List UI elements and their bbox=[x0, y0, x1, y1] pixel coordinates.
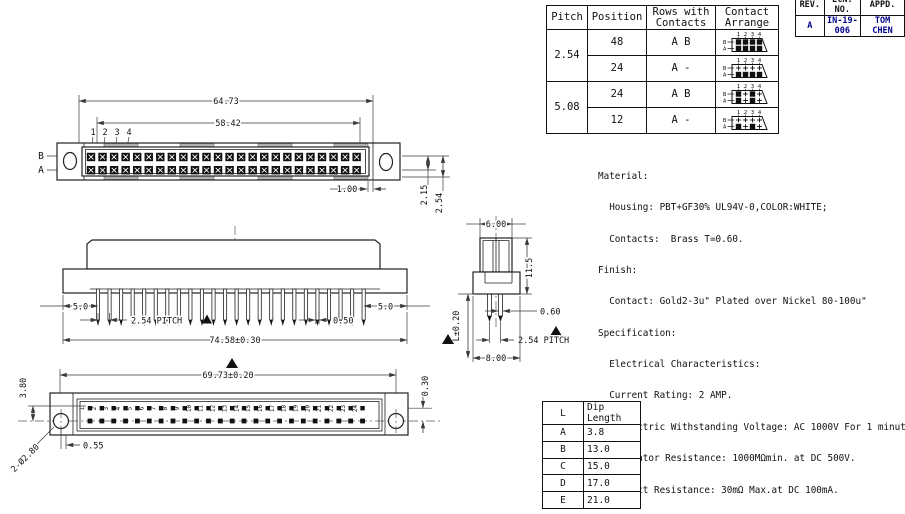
dim-row-offset: 3.80 bbox=[19, 378, 29, 398]
svg-text:4: 4 bbox=[758, 32, 762, 38]
svg-text:10: 10 bbox=[186, 405, 193, 413]
position-cell: 12 bbox=[588, 108, 647, 134]
table-row: C15.0 bbox=[543, 458, 641, 475]
dim-overall: 64.73 bbox=[213, 97, 239, 107]
dim-overall-footprint: 69.73±0.20 bbox=[202, 371, 253, 381]
svg-text:4: 4 bbox=[758, 58, 762, 64]
header-pitch: Pitch bbox=[547, 6, 588, 30]
pitch-position-table: Pitch Position Rows with Contacts Contac… bbox=[546, 5, 779, 134]
svg-text:A: A bbox=[723, 47, 727, 53]
note-line: Dielectric Withstanding Voltage: AC 1000… bbox=[598, 423, 905, 433]
dim-pin-width: 0.60 bbox=[540, 308, 560, 318]
svg-text:17: 17 bbox=[269, 405, 276, 413]
table-row: A3.8 bbox=[543, 425, 641, 442]
dip-length-table: L Dip Length A3.8 B13.0 C15.0 D17.0 E21.… bbox=[542, 401, 641, 509]
dim-pitch: 2.54 PITCH bbox=[131, 317, 182, 327]
table-row: 5.08 24 A B BA1234 bbox=[547, 82, 779, 108]
length-cell: 15.0 bbox=[584, 458, 641, 475]
dim-height: 11.5 bbox=[525, 258, 535, 278]
header-appd: APPD. bbox=[861, 0, 905, 16]
svg-text:13: 13 bbox=[221, 405, 228, 413]
pitch-cell: 2.54 bbox=[547, 30, 588, 82]
dim-bottom-width: 8.00 bbox=[486, 354, 506, 364]
svg-text:4: 4 bbox=[758, 110, 762, 116]
material-spec-notes: Material: Housing: PBT+GF30% UL94V-0,COL… bbox=[598, 151, 905, 514]
length-cell: 17.0 bbox=[584, 475, 641, 492]
svg-text:11: 11 bbox=[198, 405, 205, 413]
dim-pin-length: L±0.20 bbox=[452, 311, 462, 342]
row-label-b: B bbox=[38, 151, 44, 162]
svg-text:4: 4 bbox=[758, 84, 762, 90]
rows-cell: A - bbox=[647, 108, 716, 134]
svg-text:B: B bbox=[723, 92, 727, 98]
ecn-cell: IN-19-006 bbox=[824, 16, 860, 37]
header-rows-with-contacts: Rows with Contacts bbox=[647, 6, 716, 30]
revision-table: REV. ECN. NO. APPD. A IN-19-006 TOM CHEN bbox=[795, 0, 905, 37]
note-line: Contact Resistance: 30mΩ Max.at DC 100mA… bbox=[598, 486, 905, 496]
position-cell: 24 bbox=[588, 82, 647, 108]
mounting-hole-right bbox=[380, 154, 393, 171]
l-cell: A bbox=[543, 425, 584, 442]
header-contact-arrange: Contact Arrange bbox=[716, 6, 779, 30]
dim-hole-offset: 0.55 bbox=[83, 442, 103, 452]
svg-text:12: 12 bbox=[210, 405, 217, 413]
dim-overall-profile: 74.58±0.30 bbox=[209, 336, 260, 346]
svg-text:19: 19 bbox=[293, 405, 300, 413]
svg-text:24: 24 bbox=[352, 405, 359, 413]
pin-number-3: 3 bbox=[114, 128, 119, 138]
note-line: Contacts: Brass T=0.60. bbox=[598, 235, 905, 245]
dim-offset: 1.00 bbox=[337, 185, 357, 195]
svg-text:7: 7 bbox=[150, 406, 157, 410]
svg-text:A: A bbox=[723, 99, 727, 105]
position-cell: 48 bbox=[588, 30, 647, 56]
svg-text:4: 4 bbox=[115, 406, 122, 410]
l-cell: E bbox=[543, 492, 584, 509]
note-line: Insulator Resistance: 1000MΩmin. at DC 5… bbox=[598, 454, 905, 464]
rows-cell: A - bbox=[647, 56, 716, 82]
rev-cell: A bbox=[796, 16, 825, 37]
svg-text:8: 8 bbox=[162, 406, 169, 410]
header-ecn-no: ECN. NO. bbox=[824, 0, 860, 16]
profile-view-drawing: 5.0 5.0 2.54 PITCH 0.50 74.58±0.30 bbox=[0, 218, 460, 364]
side-view-drawing: 6.00 11.5 0.60 2.54 PITCH bbox=[440, 210, 605, 372]
dim-right-margin: 5.0 bbox=[378, 303, 393, 313]
table-row: 2.54 48 A B BA1234 bbox=[547, 30, 779, 56]
note-line: Housing: PBT+GF30% UL94V-0,COLOR:WHITE; bbox=[598, 203, 905, 213]
length-cell: 21.0 bbox=[584, 492, 641, 509]
datum-triangle bbox=[550, 326, 562, 336]
svg-text:16: 16 bbox=[257, 405, 264, 413]
svg-text:B: B bbox=[723, 40, 727, 46]
svg-text:5: 5 bbox=[127, 406, 134, 410]
length-cell: 3.8 bbox=[584, 425, 641, 442]
dim-pitch-side: 2.54 PITCH bbox=[518, 336, 569, 346]
arrange-icon: BA1234 bbox=[716, 30, 779, 56]
dim-span: 58.42 bbox=[215, 119, 241, 129]
arrange-icon: BA1234 bbox=[716, 108, 779, 134]
note-line: Material: bbox=[598, 172, 905, 182]
dim-top-width: 6.00 bbox=[486, 220, 506, 230]
row-label-a: A bbox=[38, 165, 44, 176]
length-cell: 13.0 bbox=[584, 441, 641, 458]
pin-number-1: 1 bbox=[90, 128, 95, 138]
pitch-cell: 5.08 bbox=[547, 82, 588, 134]
svg-text:A: A bbox=[723, 125, 727, 131]
header-rev: REV. bbox=[796, 0, 825, 16]
table-row: D17.0 bbox=[543, 475, 641, 492]
rows-cell: A B bbox=[647, 30, 716, 56]
dim-pad: 0.30 bbox=[421, 376, 431, 396]
dim-holes: 2-Ø2.80 bbox=[9, 442, 42, 475]
connector-datasheet-canvas: 64.73 58.42 1 2 3 4 B A bbox=[0, 0, 905, 514]
front-view-drawing: 64.73 58.42 1 2 3 4 B A bbox=[0, 85, 460, 220]
svg-text:22: 22 bbox=[328, 405, 335, 413]
svg-text:21: 21 bbox=[316, 405, 323, 413]
table-row: B13.0 bbox=[543, 441, 641, 458]
connector-hood bbox=[87, 240, 380, 269]
arrange-icon: BA1234 bbox=[716, 56, 779, 82]
svg-text:18: 18 bbox=[281, 405, 288, 413]
header-l: L bbox=[543, 402, 584, 425]
svg-text:6: 6 bbox=[138, 406, 145, 410]
l-cell: B bbox=[543, 441, 584, 458]
l-cell: C bbox=[543, 458, 584, 475]
note-line: Electrical Characteristics: bbox=[598, 360, 905, 370]
svg-text:1: 1 bbox=[79, 406, 86, 410]
note-line: Specification: bbox=[598, 329, 905, 339]
appd-cell: TOM CHEN bbox=[861, 16, 905, 37]
svg-text:B: B bbox=[723, 118, 727, 124]
svg-text:15: 15 bbox=[245, 405, 252, 413]
svg-text:20: 20 bbox=[304, 405, 311, 413]
svg-text:14: 14 bbox=[233, 405, 240, 413]
header-position: Position bbox=[588, 6, 647, 30]
note-line: Contact: Gold2-3u" Plated over Nickel 80… bbox=[598, 297, 905, 307]
footprint-view-drawing: 69.73±0.20 12345678910111213141516171819… bbox=[0, 355, 455, 490]
position-cell: 24 bbox=[588, 56, 647, 82]
pin-number-2: 2 bbox=[102, 128, 107, 138]
table-row: A IN-19-006 TOM CHEN bbox=[796, 16, 905, 37]
datum-triangle bbox=[226, 358, 238, 368]
pin-number-4: 4 bbox=[126, 128, 131, 138]
svg-text:2: 2 bbox=[91, 406, 98, 410]
l-cell: D bbox=[543, 475, 584, 492]
mounting-hole-left bbox=[64, 153, 77, 170]
arrange-icon: BA1234 bbox=[716, 82, 779, 108]
note-line: Finish: bbox=[598, 266, 905, 276]
svg-text:B: B bbox=[723, 66, 727, 72]
svg-text:23: 23 bbox=[340, 405, 347, 413]
dim-row-gap: 2.15 bbox=[420, 185, 430, 205]
svg-text:9: 9 bbox=[174, 406, 181, 410]
svg-text:A: A bbox=[723, 73, 727, 79]
header-dip-length: Dip Length bbox=[584, 402, 641, 425]
dim-tail-width: 0.50 bbox=[333, 317, 353, 327]
rows-cell: A B bbox=[647, 82, 716, 108]
svg-text:3: 3 bbox=[103, 406, 110, 410]
dim-left-margin: 5.0 bbox=[73, 303, 88, 313]
table-row: E21.0 bbox=[543, 492, 641, 509]
note-line: Current Rating: 2 AMP. bbox=[598, 391, 905, 401]
